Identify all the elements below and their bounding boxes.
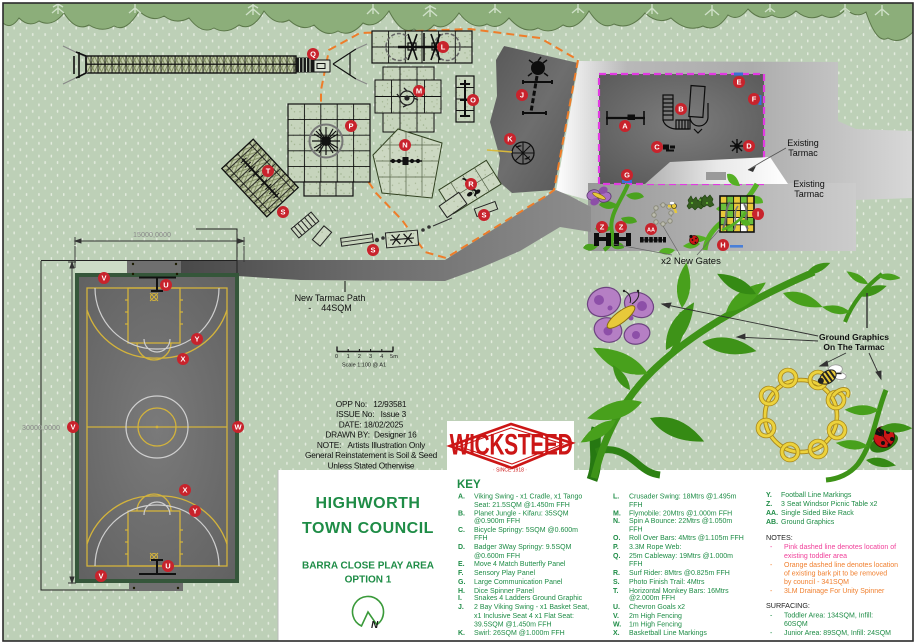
svg-text:N.: N.	[613, 518, 620, 525]
svg-text:TOWN COUNCIL: TOWN COUNCIL	[302, 520, 434, 537]
svg-text:WICKSTEED: WICKSTEED	[450, 429, 573, 461]
svg-text:N: N	[402, 141, 407, 150]
svg-text:@0.900m FFH: @0.900m FFH	[474, 518, 520, 525]
svg-text:C.: C.	[458, 527, 465, 534]
svg-text:L: L	[441, 43, 446, 52]
svg-text:New Tarmac Path: New Tarmac Path	[295, 293, 366, 303]
svg-text:F: F	[752, 95, 757, 104]
svg-text:P.: P.	[613, 544, 619, 551]
svg-text:H: H	[720, 241, 725, 250]
svg-text:FFH: FFH	[629, 527, 643, 534]
svg-text:Photo Finish Trail: 4Mtrs: Photo Finish Trail: 4Mtrs	[629, 579, 705, 586]
svg-text:· SINCE 1918 ·: · SINCE 1918 ·	[493, 468, 527, 474]
svg-text:3: 3	[369, 354, 372, 360]
svg-text:H.: H.	[458, 588, 465, 595]
svg-text:AB.: AB.	[766, 519, 778, 526]
svg-text:K: K	[507, 135, 513, 144]
svg-text:V: V	[98, 572, 103, 581]
svg-text:Move 4 Match Butterfly Panel: Move 4 Match Butterfly Panel	[474, 561, 566, 568]
svg-text:T.: T.	[613, 588, 619, 595]
svg-text:Unless Stated Otherwise: Unless Stated Otherwise	[328, 460, 415, 470]
svg-text:x2 New Gates: x2 New Gates	[661, 256, 721, 267]
svg-text:Chevron Goals x2: Chevron Goals x2	[629, 604, 685, 611]
svg-text:of existing bark pit to be rem: of existing bark pit to be removed	[784, 571, 887, 578]
svg-text:M: M	[416, 87, 422, 96]
svg-text:OPTION 1: OPTION 1	[345, 575, 392, 586]
svg-text:General Reinstatement is Soil: General Reinstatement is Soil & Seed	[305, 450, 438, 460]
svg-text:Y: Y	[194, 335, 199, 344]
svg-text:Tarmac: Tarmac	[788, 148, 818, 158]
svg-text:Toddler Area: 134SQM, Infill:: Toddler Area: 134SQM, Infill:	[784, 613, 873, 620]
svg-text:D: D	[746, 142, 752, 151]
svg-text:Tarmac: Tarmac	[794, 189, 824, 199]
svg-text:Seat: 21.5SQM @1.450m FFH: Seat: 21.5SQM @1.450m FFH	[474, 502, 570, 509]
svg-text:Junior Area: 89SQM, Infill: 24: Junior Area: 89SQM, Infill: 24SQM	[784, 630, 891, 637]
svg-text:B: B	[678, 105, 684, 114]
svg-text:U.: U.	[613, 604, 620, 611]
svg-text:A.: A.	[458, 494, 465, 501]
svg-text:2 Bay Viking Swing - x1 Basket: 2 Bay Viking Swing - x1 Basket Seat,	[474, 604, 589, 611]
svg-text:Z: Z	[600, 223, 605, 232]
svg-text:Viking Swing - x1 Cradle, x1 T: Viking Swing - x1 Cradle, x1 Tango	[474, 494, 582, 501]
svg-text:Z: Z	[619, 223, 624, 232]
svg-text:by council - 341SQM: by council - 341SQM	[784, 579, 849, 586]
svg-text:Sensory Play Panel: Sensory Play Panel	[474, 570, 536, 577]
svg-text:J: J	[520, 91, 524, 100]
svg-text:DATE: 18/02/2025: DATE: 18/02/2025	[339, 419, 404, 429]
svg-text:K.: K.	[458, 630, 465, 637]
svg-text:FFH: FFH	[629, 561, 643, 568]
svg-text:Dice Spinner Panel: Dice Spinner Panel	[474, 588, 534, 595]
svg-text:FFH: FFH	[474, 535, 488, 542]
svg-text:ISSUE No: Issue 3: ISSUE No: Issue 3	[336, 409, 407, 419]
svg-text:X: X	[182, 486, 187, 495]
svg-text:KEY: KEY	[457, 479, 481, 491]
svg-text:U: U	[165, 562, 170, 571]
svg-text:Badger 3Way Springy: 9.5SQM: Badger 3Way Springy: 9.5SQM	[474, 544, 572, 551]
svg-text:AA.: AA.	[766, 510, 778, 517]
svg-text:3 Seat Windsor Picnic Table x2: 3 Seat Windsor Picnic Table x2	[781, 501, 877, 508]
svg-text:Ground Graphics: Ground Graphics	[819, 332, 889, 342]
svg-text:60SQM: 60SQM	[784, 621, 808, 628]
svg-text:C: C	[654, 143, 660, 152]
svg-text:25m Cableway: 19Mtrs @1.000m: 25m Cableway: 19Mtrs @1.000m	[629, 553, 733, 560]
svg-text:W.: W.	[613, 622, 621, 629]
svg-text:@0.600m FFH: @0.600m FFH	[474, 553, 520, 560]
svg-text:T: T	[266, 167, 271, 176]
svg-text:@2.000m FFH: @2.000m FFH	[629, 595, 675, 602]
svg-text:R: R	[468, 180, 474, 189]
svg-text:I.: I.	[458, 595, 462, 602]
svg-text:Snakes 4 Ladders Ground Graphi: Snakes 4 Ladders Ground Graphic	[474, 595, 583, 602]
svg-text:E: E	[736, 78, 741, 87]
svg-text:Spin A Bounce: 22Mtrs @1.050m: Spin A Bounce: 22Mtrs @1.050m	[629, 518, 732, 525]
svg-text:OPP No: 12/93581: OPP No: 12/93581	[336, 399, 407, 409]
svg-text:Existing: Existing	[793, 179, 825, 189]
svg-text:V: V	[70, 423, 75, 432]
svg-text:Horizontal Monkey Bars: 16Mtrs: Horizontal Monkey Bars: 16Mtrs	[629, 588, 729, 595]
svg-text:existing toddler area: existing toddler area	[784, 553, 847, 560]
svg-text:B.: B.	[458, 511, 465, 518]
svg-text:I: I	[757, 210, 759, 219]
svg-text:SURFACING:: SURFACING:	[766, 601, 810, 610]
svg-text:Ground Graphics: Ground Graphics	[781, 519, 835, 526]
svg-text:N: N	[371, 620, 379, 631]
svg-text:O.: O.	[613, 535, 620, 542]
svg-text:On The Tarmac: On The Tarmac	[823, 342, 885, 352]
svg-text:V.: V.	[613, 613, 619, 620]
svg-text:4: 4	[380, 354, 383, 360]
svg-text:2m High Fencing: 2m High Fencing	[629, 613, 682, 620]
svg-text:S: S	[370, 246, 375, 255]
svg-text:J.: J.	[458, 604, 464, 611]
svg-text:DRAWN BY: Designer 16: DRAWN BY: Designer 16	[325, 430, 417, 440]
svg-text:Pink dashed line denotes locat: Pink dashed line denotes location of	[784, 544, 896, 551]
svg-text:P: P	[348, 122, 353, 131]
svg-text:15000,0000: 15000,0000	[133, 230, 171, 239]
svg-text:F.: F.	[458, 570, 464, 577]
svg-text:X: X	[180, 355, 185, 364]
svg-text:Z.: Z.	[766, 501, 772, 508]
svg-text:Y: Y	[192, 507, 197, 516]
svg-text:X.: X.	[613, 630, 620, 637]
svg-text:Large Communication Panel: Large Communication Panel	[474, 579, 563, 586]
svg-text:- 44SQM: - 44SQM	[308, 303, 352, 313]
svg-text:Planet Jungle - Kifaru: 35SQM: Planet Jungle - Kifaru: 35SQM	[474, 511, 569, 518]
svg-text:V: V	[101, 274, 106, 283]
svg-text:5m: 5m	[390, 354, 398, 360]
svg-text:Roll Over Bars: 4Mtrs @1.105m: Roll Over Bars: 4Mtrs @1.105m FFH	[629, 535, 744, 542]
svg-text:Bicycle Springy: 5SQM @0.600m: Bicycle Springy: 5SQM @0.600m	[474, 527, 578, 534]
svg-text:HIGHWORTH: HIGHWORTH	[316, 495, 421, 512]
svg-text:3.3M Rope Web:: 3.3M Rope Web:	[629, 544, 681, 551]
svg-text:BARRA CLOSE PLAY AREA: BARRA CLOSE PLAY AREA	[302, 561, 434, 572]
svg-text:NOTE: Artists Illustration O: NOTE: Artists Illustration Only	[317, 440, 426, 450]
svg-text:W: W	[234, 423, 242, 432]
svg-text:x1 Inclusive Seat 4 x1 Flat Se: x1 Inclusive Seat 4 x1 Flat Seat:	[474, 613, 574, 620]
svg-text:Crusader Swing: 18Mtrs @1.495m: Crusader Swing: 18Mtrs @1.495m	[629, 494, 737, 501]
svg-text:G: G	[624, 171, 630, 180]
svg-text:NOTES:: NOTES:	[766, 533, 793, 542]
svg-text:S: S	[481, 211, 486, 220]
svg-text:R.: R.	[613, 570, 620, 577]
svg-text:G.: G.	[458, 579, 465, 586]
svg-text:M.: M.	[613, 511, 621, 518]
svg-text:1: 1	[347, 354, 350, 360]
svg-text:3LM Drainage For Unity Spinner: 3LM Drainage For Unity Spinner	[784, 588, 885, 595]
svg-text:FFH: FFH	[629, 502, 643, 509]
svg-text:S.: S.	[613, 579, 620, 586]
svg-text:39.5SQM @1.450m FFH: 39.5SQM @1.450m FFH	[474, 622, 552, 629]
svg-text:Swirl: 26SQM @1.000m FFH: Swirl: 26SQM @1.000m FFH	[474, 630, 565, 637]
svg-text:O: O	[470, 96, 476, 105]
svg-text:Football Line Markings: Football Line Markings	[781, 492, 852, 499]
svg-text:E.: E.	[458, 561, 465, 568]
svg-text:30000,0000: 30000,0000	[22, 423, 60, 432]
svg-text:Surf Rider: 8Mtrs @0.825m FFH: Surf Rider: 8Mtrs @0.825m FFH	[629, 570, 730, 577]
svg-text:Q: Q	[310, 50, 316, 59]
svg-text:1m High Fencing: 1m High Fencing	[629, 622, 682, 629]
svg-text:Flymobile: 20Mtrs @1.000m FFH: Flymobile: 20Mtrs @1.000m FFH	[629, 511, 732, 518]
svg-text:U: U	[163, 281, 168, 290]
svg-text:L.: L.	[613, 494, 619, 501]
svg-text:Scale 1:100 @ A1: Scale 1:100 @ A1	[342, 363, 386, 369]
svg-text:Q.: Q.	[613, 553, 620, 560]
svg-text:Basketball Line Markings: Basketball Line Markings	[629, 630, 707, 637]
svg-text:Single Sided Bike Rack: Single Sided Bike Rack	[781, 510, 854, 517]
svg-text:Existing: Existing	[787, 138, 819, 148]
svg-text:0: 0	[335, 354, 338, 360]
svg-text:Y.: Y.	[766, 492, 772, 499]
svg-text:S: S	[280, 208, 285, 217]
svg-text:D.: D.	[458, 544, 465, 551]
svg-text:A: A	[622, 122, 628, 131]
svg-text:Orange dashed line denotes loc: Orange dashed line denotes location	[784, 562, 898, 569]
svg-text:AA: AA	[647, 227, 655, 233]
svg-text:2: 2	[358, 354, 361, 360]
